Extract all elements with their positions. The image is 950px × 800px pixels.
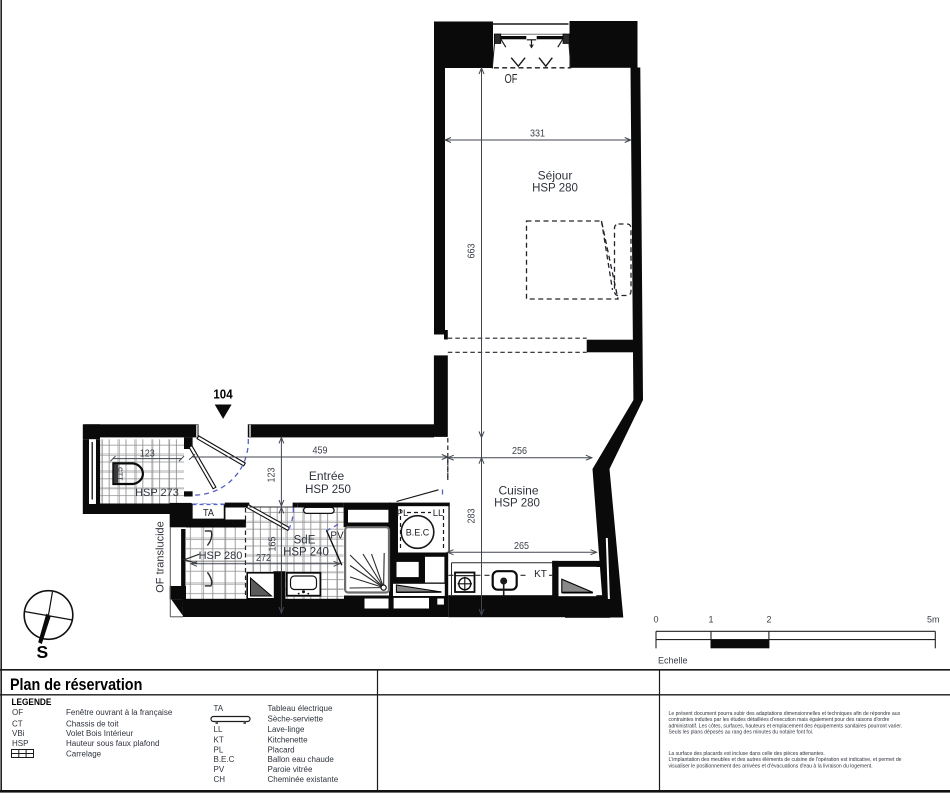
svg-text:Cuisine: Cuisine — [498, 484, 538, 498]
svg-text:SdE: SdE — [294, 535, 316, 547]
svg-text:Lave-linge: Lave-linge — [268, 725, 305, 734]
svg-text:PV: PV — [330, 531, 344, 542]
svg-text:KT: KT — [214, 736, 224, 745]
svg-text:CT: CT — [12, 720, 23, 729]
svg-text:HSP 280: HSP 280 — [532, 183, 578, 195]
svg-text:HSP 273: HSP 273 — [135, 487, 179, 499]
svg-text:Plan de réservation: Plan de réservation — [10, 676, 142, 694]
svg-text:123: 123 — [266, 467, 278, 482]
svg-text:Echelle: Echelle — [658, 656, 688, 666]
svg-text:HSP 250: HSP 250 — [305, 484, 351, 496]
svg-text:283: 283 — [466, 508, 478, 523]
svg-text:L'implantation des meubles et: L'implantation des meubles et des autres… — [669, 757, 902, 763]
svg-text:S: S — [37, 642, 49, 662]
svg-text:HSP 280: HSP 280 — [494, 498, 540, 510]
svg-text:Placard: Placard — [268, 746, 295, 755]
svg-text:459: 459 — [313, 445, 328, 457]
svg-text:PL: PL — [214, 746, 224, 755]
svg-text:LL: LL — [433, 508, 444, 519]
svg-text:5m: 5m — [927, 615, 940, 625]
svg-text:LEGENDE: LEGENDE — [11, 696, 51, 707]
svg-text:Sèche-serviette: Sèche-serviette — [268, 715, 324, 724]
svg-text:CH: CH — [214, 775, 226, 784]
svg-text:HSP 280: HSP 280 — [199, 550, 243, 562]
svg-text:Volet Bois Intérieur: Volet Bois Intérieur — [66, 729, 133, 738]
svg-text:B.E.C: B.E.C — [406, 527, 430, 537]
svg-text:Le présent document pourra sub: Le présent document pourra subir des ada… — [669, 711, 901, 717]
svg-text:La surface des placards est in: La surface des placards est incluse dans… — [669, 751, 825, 757]
svg-text:HSP 240: HSP 240 — [283, 547, 329, 559]
svg-text:OF translucide: OF translucide — [155, 521, 167, 593]
svg-text:OF: OF — [505, 71, 518, 86]
svg-text:265: 265 — [514, 540, 529, 552]
svg-text:Ballon eau chaude: Ballon eau chaude — [268, 755, 335, 764]
svg-text:contraintes induites par les é: contraintes induites par les études déta… — [669, 717, 890, 723]
svg-text:123: 123 — [140, 448, 155, 460]
svg-text:165: 165 — [267, 536, 279, 551]
svg-text:HSP: HSP — [12, 739, 28, 748]
svg-text:115: 115 — [115, 467, 126, 481]
svg-text:B.E.C: B.E.C — [214, 755, 235, 764]
svg-text:PV: PV — [214, 765, 225, 774]
svg-text:272: 272 — [256, 552, 271, 564]
svg-text:1: 1 — [709, 615, 714, 625]
svg-text:Paroie vitrée: Paroie vitrée — [268, 765, 313, 774]
svg-text:administratif. Les côtes, surf: administratif. Les côtes, surfaces, haut… — [669, 723, 903, 729]
svg-text:Seuls les plans déposés au ran: Seuls les plans déposés au rang des minu… — [669, 730, 814, 736]
svg-text:256: 256 — [512, 445, 527, 457]
svg-text:Tableau électrique: Tableau électrique — [268, 704, 333, 713]
svg-text:visualiser le positionnement d: visualiser le positionnement des arrivée… — [669, 763, 873, 769]
svg-text:331: 331 — [530, 128, 545, 140]
svg-text:Carrelage: Carrelage — [66, 750, 102, 759]
svg-text:PL: PL — [397, 508, 409, 519]
svg-text:663: 663 — [466, 243, 478, 258]
svg-text:Hauteur sous faux plafond: Hauteur sous faux plafond — [66, 739, 159, 748]
svg-text:KT: KT — [534, 569, 547, 580]
svg-text:TA: TA — [203, 508, 214, 519]
svg-text:2: 2 — [767, 615, 772, 625]
svg-text:VBi: VBi — [12, 729, 25, 738]
svg-text:Entrée: Entrée — [309, 469, 345, 483]
svg-text:Cheminée existante: Cheminée existante — [268, 775, 339, 784]
svg-text:TA: TA — [214, 704, 224, 713]
svg-text:Chassis de toit: Chassis de toit — [66, 720, 119, 729]
svg-text:Fenêtre ouvrant à la française: Fenêtre ouvrant à la française — [66, 708, 173, 717]
svg-text:Kitchenette: Kitchenette — [268, 736, 309, 745]
svg-text:0: 0 — [654, 615, 659, 625]
svg-text:104: 104 — [213, 387, 232, 402]
svg-text:Séjour: Séjour — [538, 169, 573, 183]
svg-text:LL: LL — [214, 725, 223, 734]
svg-text:OF: OF — [12, 708, 23, 717]
